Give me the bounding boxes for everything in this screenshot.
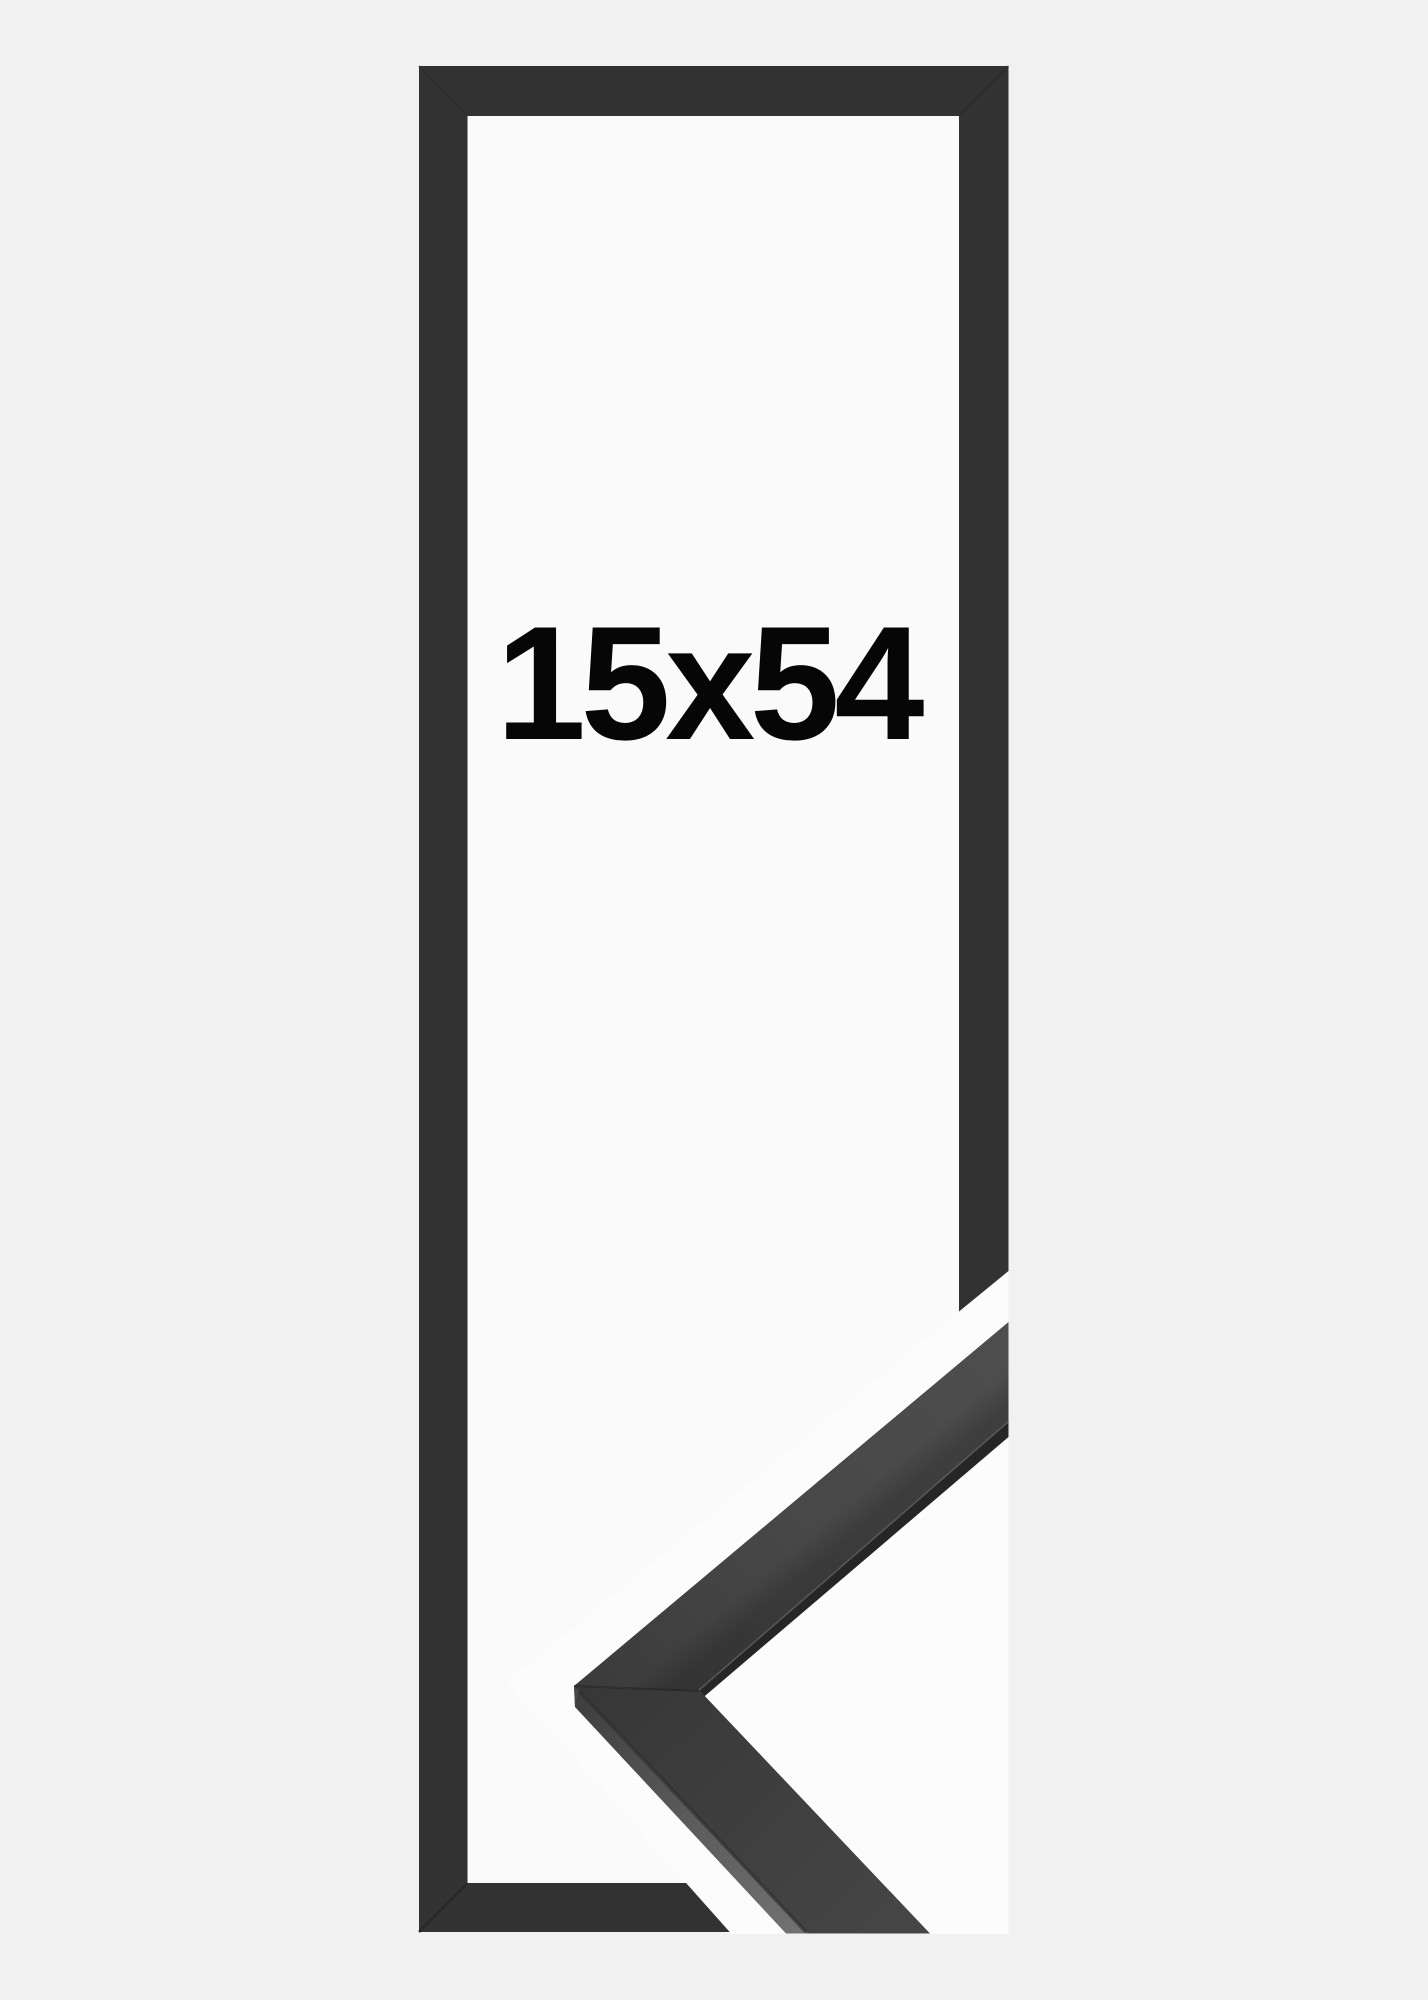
svg-text:15x54: 15x54 [496, 593, 924, 774]
